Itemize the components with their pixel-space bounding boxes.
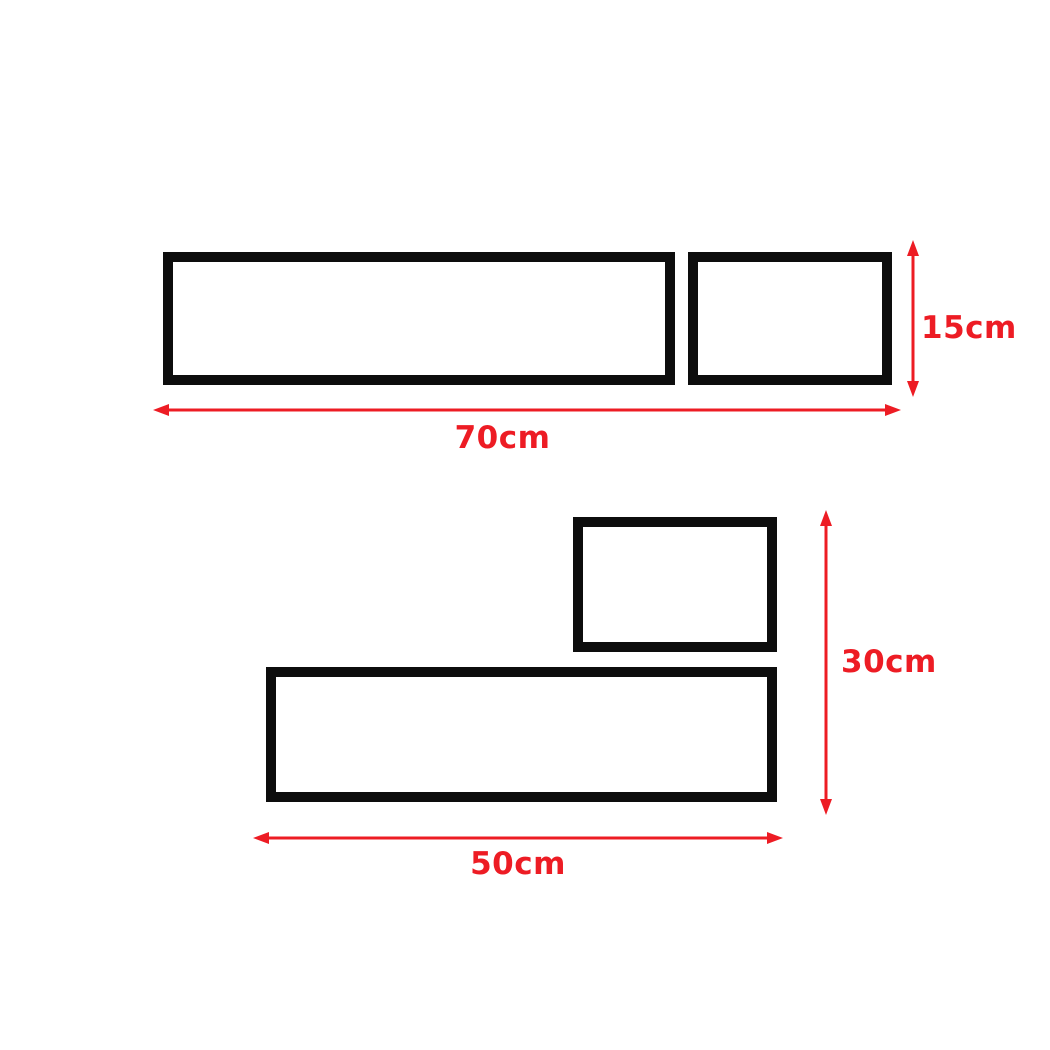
dimension-label-height-bottom: 30cm [841, 644, 937, 680]
top-group-long-shelf-rectangle [163, 252, 675, 385]
horizontal-dimension-arrow-70cm [153, 399, 901, 421]
vertical-dimension-arrow-30cm [815, 510, 837, 815]
top-group-short-shelf-rectangle [688, 252, 892, 385]
dimension-label-height-top: 15cm [921, 310, 1017, 346]
bottom-group-long-shelf-rectangle [266, 667, 777, 802]
dimension-diagram: 15cm 70cm 30cm 50cm [0, 0, 1050, 1050]
dimension-label-width-top: 70cm [400, 420, 605, 456]
dimension-label-width-bottom: 50cm [418, 846, 618, 882]
bottom-group-short-shelf-rectangle [573, 517, 777, 652]
